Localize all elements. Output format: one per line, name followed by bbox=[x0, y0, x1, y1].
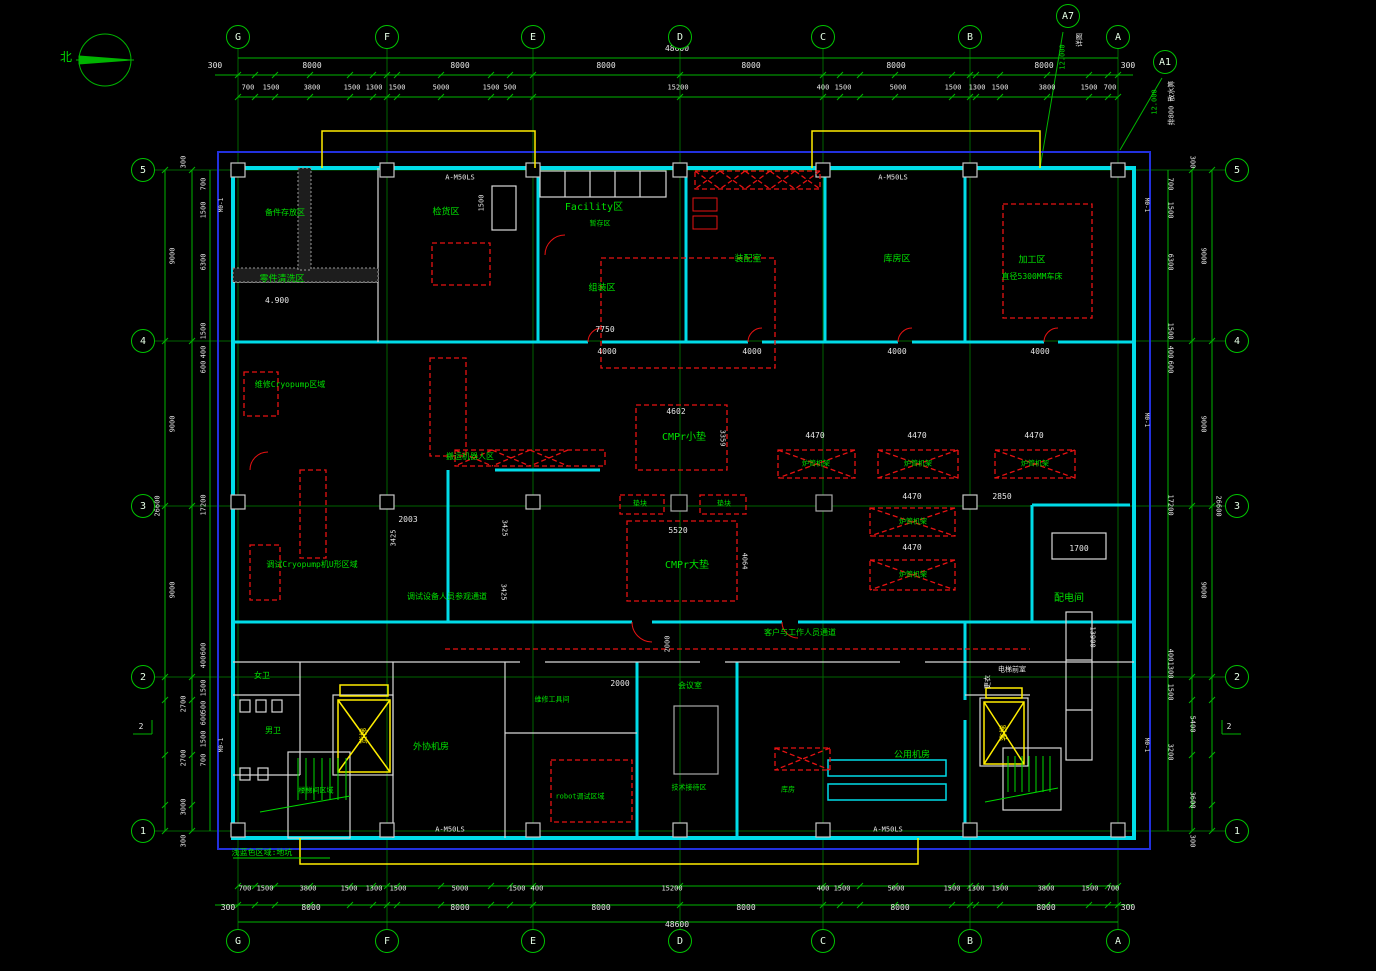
dimension-ticks bbox=[162, 72, 1215, 908]
grid-lines bbox=[150, 48, 1232, 935]
cyan-fixtures bbox=[828, 760, 946, 800]
floor-plan-linework bbox=[0, 0, 1376, 971]
hatched-walls bbox=[233, 168, 378, 282]
columns bbox=[231, 163, 1125, 837]
dimension-lines bbox=[76, 32, 1241, 922]
door-swings bbox=[250, 198, 1058, 642]
elevators-and-canopies bbox=[300, 131, 1040, 864]
cad-floor-plan-canvas: 北486003008000800080008000800080003007001… bbox=[0, 0, 1376, 971]
